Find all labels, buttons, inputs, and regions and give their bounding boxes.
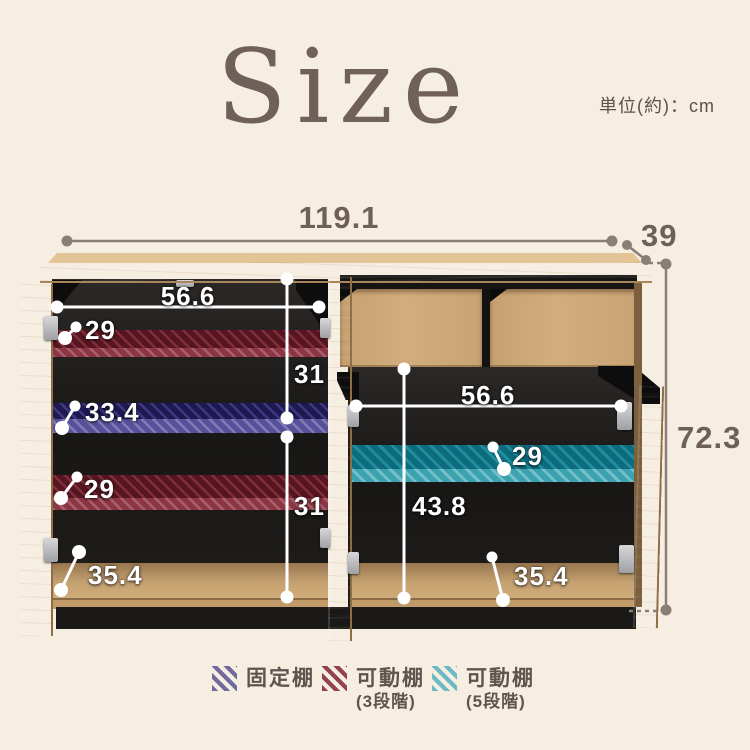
left-lower-gap-label: 31: [294, 491, 325, 522]
total-width-endpoint-right: [607, 236, 618, 247]
legend-sublabel: (5段階): [466, 692, 535, 712]
total-height-endpoint-bottom: [661, 605, 672, 616]
total-depth-endpoint-back: [622, 240, 632, 250]
legend-label: 可動棚: [466, 666, 535, 692]
left-upper-shelf-depth-dot-b: [58, 331, 72, 345]
size-diagram: Size 単位(約)：cm: [0, 0, 750, 750]
right-shelf-depth-label: 29: [512, 441, 543, 472]
legend-item-movable-shelf-3: 可動棚 (3段階): [322, 666, 425, 713]
left-lower-shelf-depth-dot-a: [72, 472, 83, 483]
fixed-shelf-depth-dot-b: [55, 421, 69, 435]
legend-label: 固定棚: [246, 666, 315, 692]
right-inner-width-endpoint-left: [350, 400, 363, 413]
left-lower-shelf-depth-dot-b: [54, 491, 68, 505]
right-bottom-depth-dot-a: [487, 552, 498, 563]
right-shelf-depth-dot-b: [497, 462, 511, 476]
left-inner-width-label: 56.6: [140, 281, 236, 312]
fixed-shelf-swatch: [212, 666, 237, 691]
left-bottom-depth-label: 35.4: [88, 560, 143, 591]
left-upper-gap-endpoint-bottom: [281, 412, 294, 425]
left-lower-gap-endpoint-top: [281, 431, 294, 444]
right-inner-width-label: 56.6: [440, 380, 536, 411]
right-bottom-depth-dot-b: [496, 593, 510, 607]
legend-sublabel: (3段階): [356, 692, 425, 712]
right-inner-height-endpoint-bottom: [398, 592, 411, 605]
left-bottom-depth-dot-a: [72, 545, 86, 559]
right-shelf-depth-dot-a: [488, 442, 499, 453]
right-inner-width-endpoint-right: [615, 400, 628, 413]
movable-shelf-3-swatch: [322, 666, 347, 691]
movable-shelf-5-swatch: [432, 666, 457, 691]
right-bottom-depth-label: 35.4: [514, 561, 569, 592]
left-inner-width-endpoint-left: [51, 301, 64, 314]
left-inner-width-endpoint-right: [313, 301, 326, 314]
left-upper-shelf-depth-dot-a: [71, 322, 82, 333]
right-inner-height-label: 43.8: [412, 491, 467, 522]
legend-item-movable-shelf-5: 可動棚 (5段階): [432, 666, 535, 713]
fixed-shelf-depth-label: 33.4: [85, 397, 140, 428]
fixed-shelf-depth-dot-a: [70, 401, 81, 412]
right-inner-height-endpoint-top: [398, 363, 411, 376]
left-bottom-depth-dot-b: [54, 583, 68, 597]
total-depth-label: 39: [641, 218, 677, 254]
left-upper-shelf-depth-label: 29: [85, 315, 116, 346]
left-upper-gap-endpoint-top: [281, 273, 294, 286]
left-lower-shelf-depth-label: 29: [84, 474, 115, 505]
total-height-endpoint-top: [661, 259, 672, 270]
total-width-endpoint-left: [62, 236, 73, 247]
left-lower-gap-endpoint-bottom: [281, 591, 294, 604]
total-width-label: 119.1: [264, 200, 414, 236]
legend-label: 可動棚: [356, 666, 425, 692]
total-height-label: 72.3: [677, 420, 741, 456]
dimension-lines-overlay: [0, 0, 750, 750]
legend-item-fixed-shelf: 固定棚: [212, 666, 315, 692]
left-upper-gap-label: 31: [294, 359, 325, 390]
